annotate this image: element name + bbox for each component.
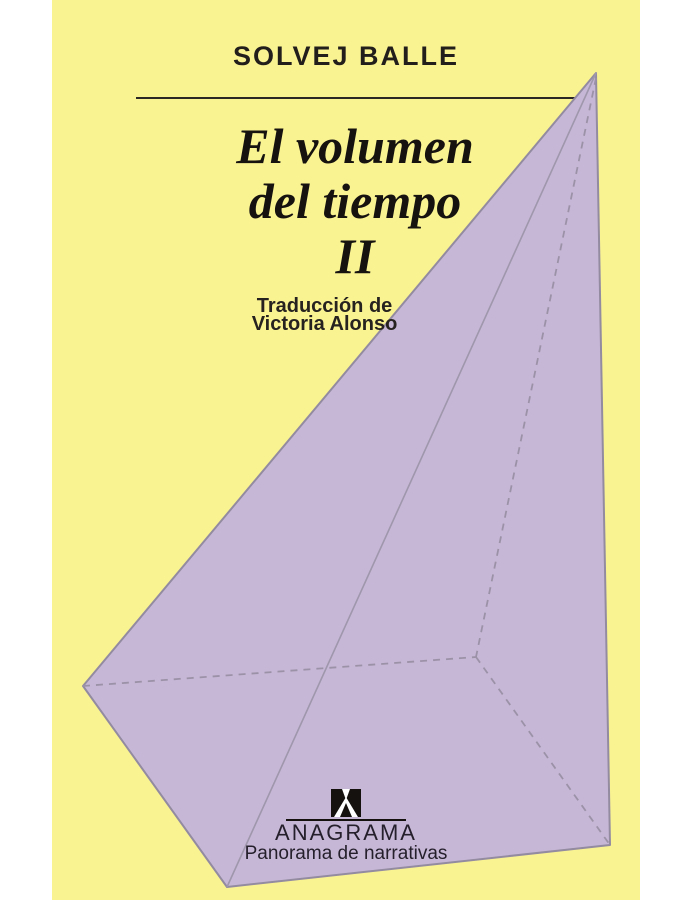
publisher-imprint: Panorama de narrativas (52, 844, 640, 863)
book-cover-page: SOLVEJ BALLE El volumen del tiempo II Tr… (0, 0, 696, 900)
title-line-1: El volumen (60, 119, 650, 174)
author-name: SOLVEJ BALLE (52, 41, 640, 72)
translation-line-2: Victoria Alonso (52, 315, 597, 333)
publisher-block: ANAGRAMA Panorama de narrativas (52, 789, 640, 863)
translation-credit: Traducción de Victoria Alonso (52, 297, 597, 333)
publisher-name: ANAGRAMA (52, 822, 640, 843)
title-line-3: II (60, 229, 650, 284)
title-line-2: del tiempo (60, 174, 650, 229)
book-title: El volumen del tiempo II (60, 119, 650, 284)
anagrama-a-icon (331, 789, 361, 817)
